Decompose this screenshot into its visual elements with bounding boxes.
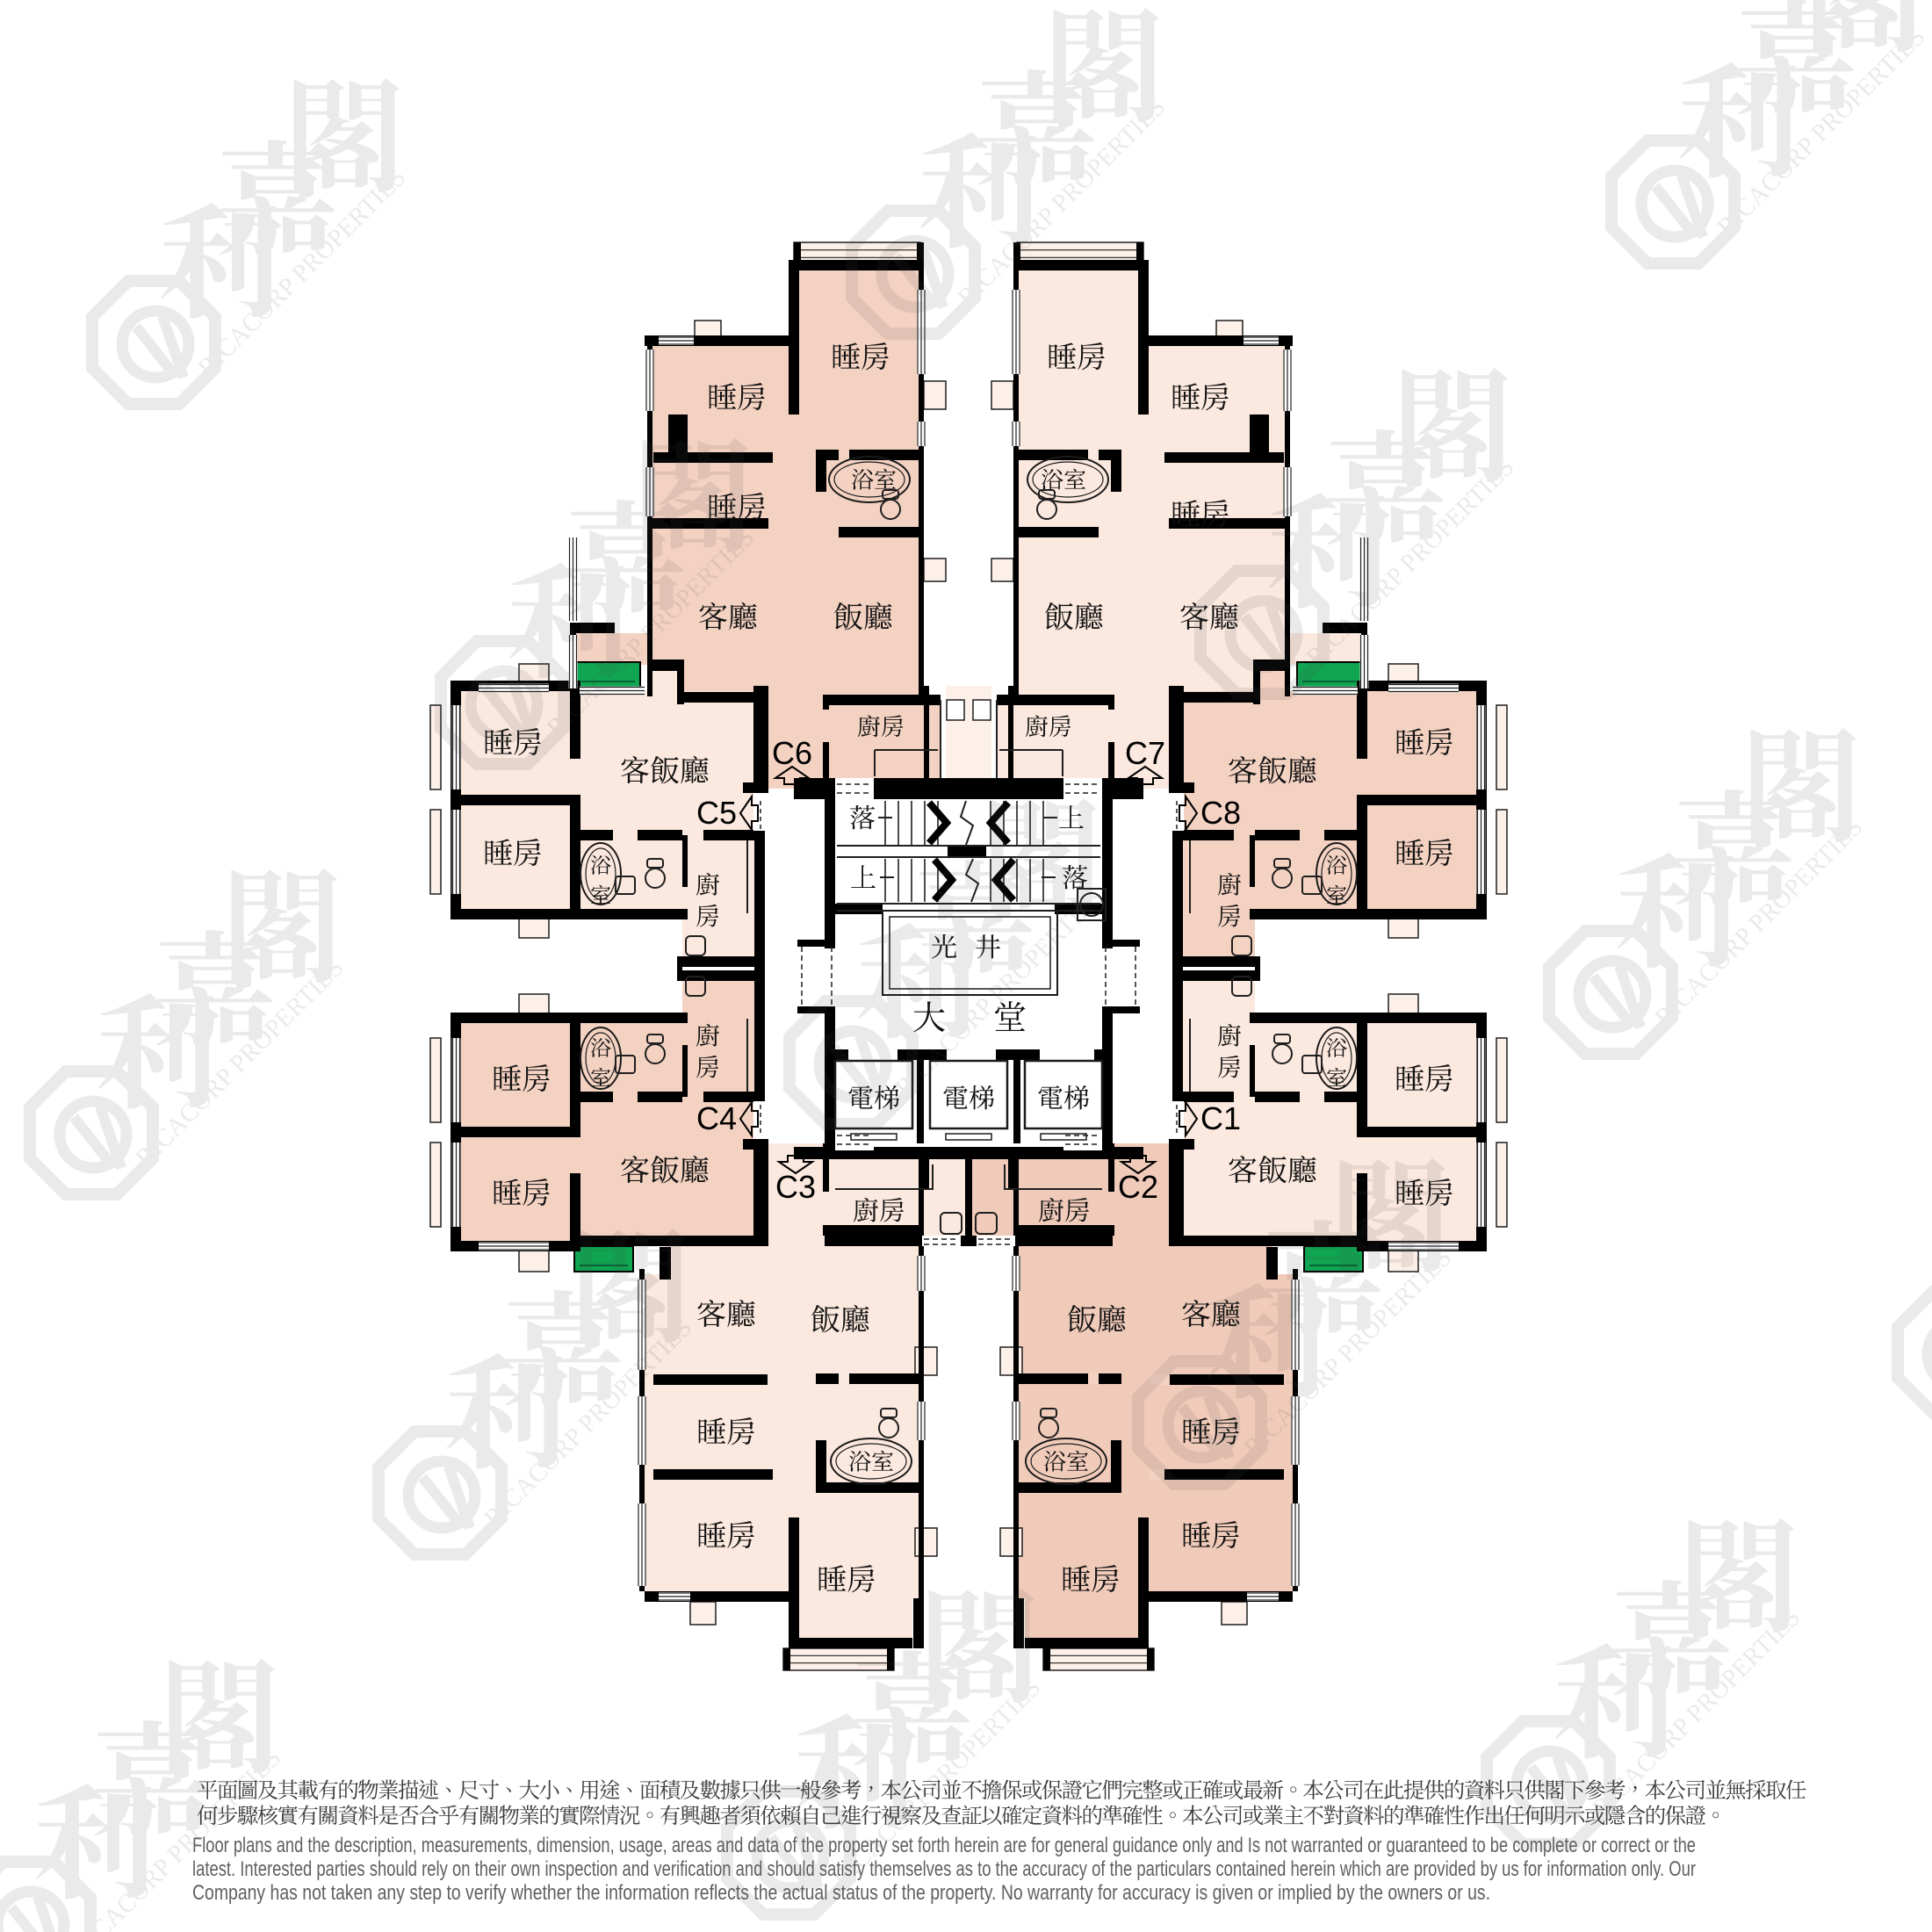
svg-text:Company has not taken any step: Company has not taken any step to verify… — [192, 1881, 1490, 1905]
svg-text:C5: C5 — [696, 795, 737, 831]
svg-text:C4: C4 — [696, 1100, 737, 1136]
svg-text:C1: C1 — [1200, 1100, 1241, 1136]
svg-text:latest. Interested parties sho: latest. Interested parties should rely o… — [192, 1857, 1696, 1881]
svg-text:C8: C8 — [1200, 795, 1241, 831]
svg-text:Floor plans and the descriptio: Floor plans and the description, measure… — [192, 1834, 1696, 1857]
